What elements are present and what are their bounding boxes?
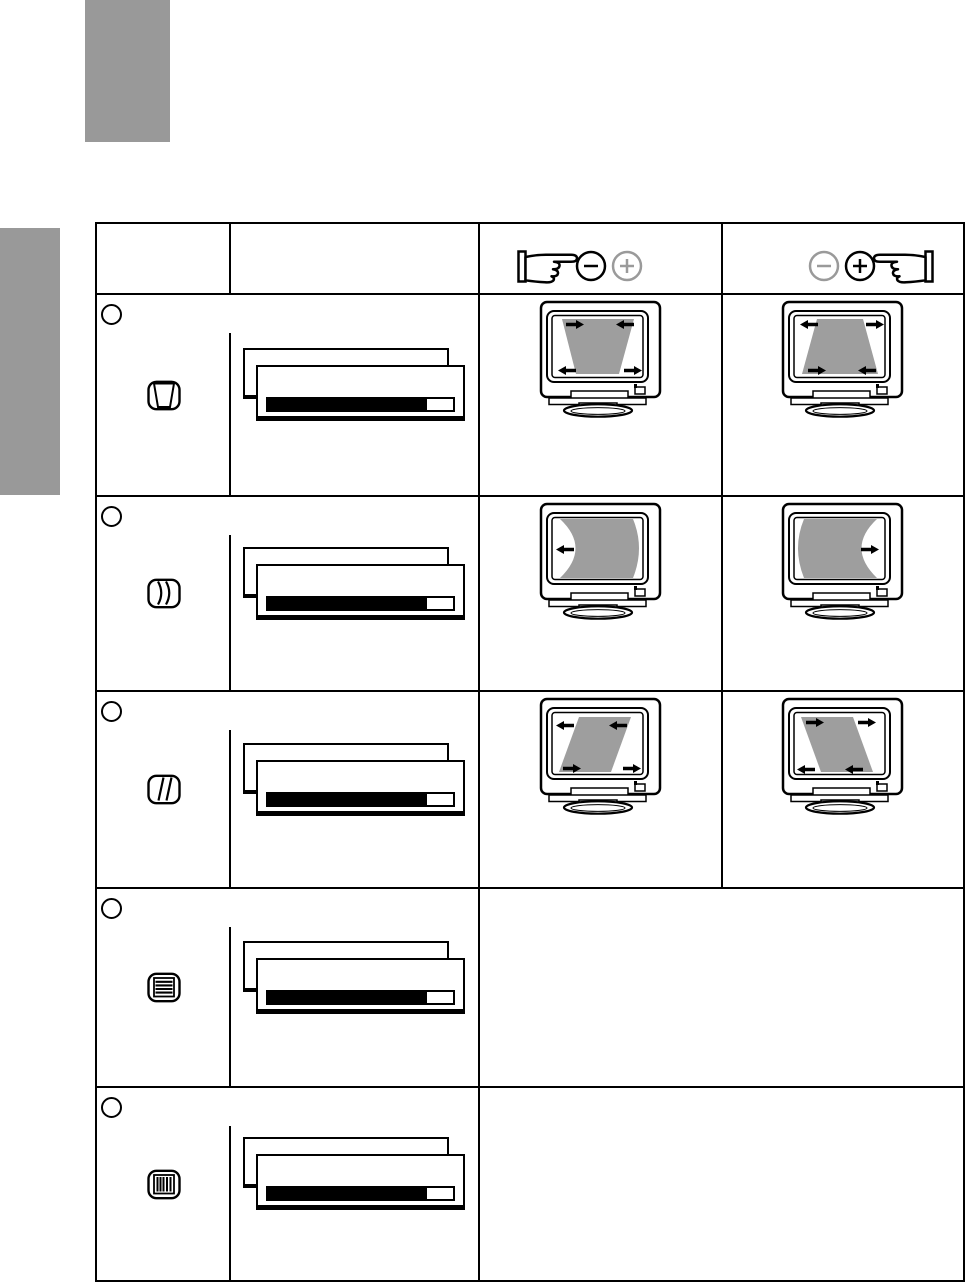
osd-window-front bbox=[256, 760, 465, 816]
row-bullet-circle bbox=[101, 304, 122, 325]
minus-effect-cell bbox=[480, 692, 723, 889]
pointing-hand-right-icon bbox=[516, 246, 580, 286]
osd-menu-stack bbox=[243, 1137, 467, 1215]
monitor-pincushion-plus-illustration bbox=[781, 502, 905, 622]
osd-menu-stack bbox=[243, 547, 467, 625]
osd-menu-stack bbox=[243, 941, 467, 1019]
horizontal-stripes-icon bbox=[147, 972, 181, 1003]
header-plus-column bbox=[723, 224, 963, 295]
row-trapezoid-icon-cell bbox=[97, 295, 231, 497]
header-menu-column bbox=[231, 224, 480, 295]
plus-effect-cell bbox=[723, 692, 963, 889]
manual-page bbox=[0, 0, 967, 1284]
osd-slider-fill bbox=[268, 598, 427, 609]
plus-effect-cell bbox=[723, 497, 963, 692]
osd-slider-fill bbox=[268, 399, 427, 410]
osd-menu-cell bbox=[231, 889, 480, 1088]
pincushion-balance-icon bbox=[147, 578, 181, 609]
monitor-parallelogram-minus-illustration bbox=[539, 697, 663, 817]
minus-effect-cell bbox=[480, 497, 723, 692]
row-bullet-circle bbox=[101, 506, 122, 527]
osd-menu-stack bbox=[243, 348, 467, 426]
osd-window-front bbox=[256, 958, 465, 1014]
minus-button-icon-inactive bbox=[808, 250, 840, 282]
monitor-parallelogram-plus-illustration bbox=[781, 697, 905, 817]
osd-slider-fill bbox=[268, 794, 427, 805]
osd-slider-track bbox=[266, 990, 455, 1005]
osd-window-front bbox=[256, 564, 465, 620]
osd-slider-track bbox=[266, 397, 455, 412]
plus-button-icon-inactive bbox=[611, 250, 643, 282]
hand-pressing-minus bbox=[516, 246, 645, 286]
osd-slider-track bbox=[266, 596, 455, 611]
merged-empty-cell bbox=[480, 1088, 963, 1280]
osd-menu-cell bbox=[231, 295, 480, 497]
row-pincushion-icon-cell bbox=[97, 497, 231, 692]
osd-menu-cell bbox=[231, 497, 480, 692]
plus-effect-cell bbox=[723, 295, 963, 497]
osd-menu-cell bbox=[231, 1088, 480, 1280]
row-vstripes-icon-cell bbox=[97, 1088, 231, 1280]
row-bullet-circle bbox=[101, 701, 122, 722]
header-icon-column bbox=[97, 224, 231, 295]
osd-window-front bbox=[256, 1154, 465, 1210]
osd-menu-stack bbox=[243, 743, 467, 821]
adjustment-table bbox=[95, 222, 965, 1282]
osd-slider-fill bbox=[268, 1188, 427, 1199]
monitor-pincushion-minus-illustration bbox=[539, 502, 663, 622]
hand-pressing-plus bbox=[806, 246, 935, 286]
merged-empty-cell bbox=[480, 889, 963, 1088]
trapezoid-adjustment-icon bbox=[147, 380, 181, 411]
osd-menu-cell bbox=[231, 692, 480, 889]
row-hstripes-icon-cell bbox=[97, 889, 231, 1088]
osd-window-front bbox=[256, 365, 465, 421]
vertical-stripes-icon bbox=[147, 1169, 181, 1200]
minus-effect-cell bbox=[480, 295, 723, 497]
chapter-tab-top bbox=[85, 0, 170, 142]
osd-slider-track bbox=[266, 792, 455, 807]
row-bullet-circle bbox=[101, 1097, 122, 1118]
parallelogram-adjustment-icon bbox=[147, 774, 181, 805]
row-parallelogram-icon-cell bbox=[97, 692, 231, 889]
osd-slider-fill bbox=[268, 992, 427, 1003]
section-tab-left bbox=[0, 228, 60, 495]
header-minus-column bbox=[480, 224, 723, 295]
monitor-trapezoid-plus-illustration bbox=[781, 300, 905, 420]
row-bullet-circle bbox=[101, 898, 122, 919]
osd-slider-track bbox=[266, 1186, 455, 1201]
pointing-hand-left-icon bbox=[871, 246, 935, 286]
monitor-trapezoid-minus-illustration bbox=[539, 300, 663, 420]
